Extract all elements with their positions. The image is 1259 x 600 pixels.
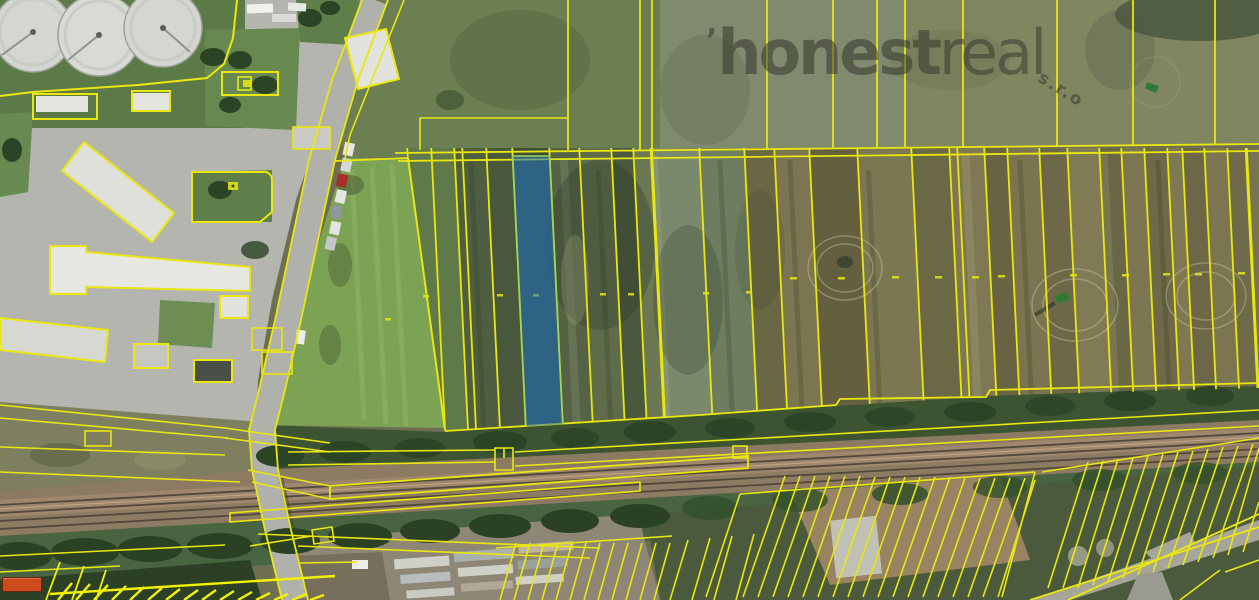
map-root[interactable]: ʼhonestreals.r.o [0,0,1259,600]
storage-tanks [0,0,202,76]
corner-badge [2,577,42,592]
top-fields [330,0,1259,158]
aerial-map-image [0,0,1259,600]
